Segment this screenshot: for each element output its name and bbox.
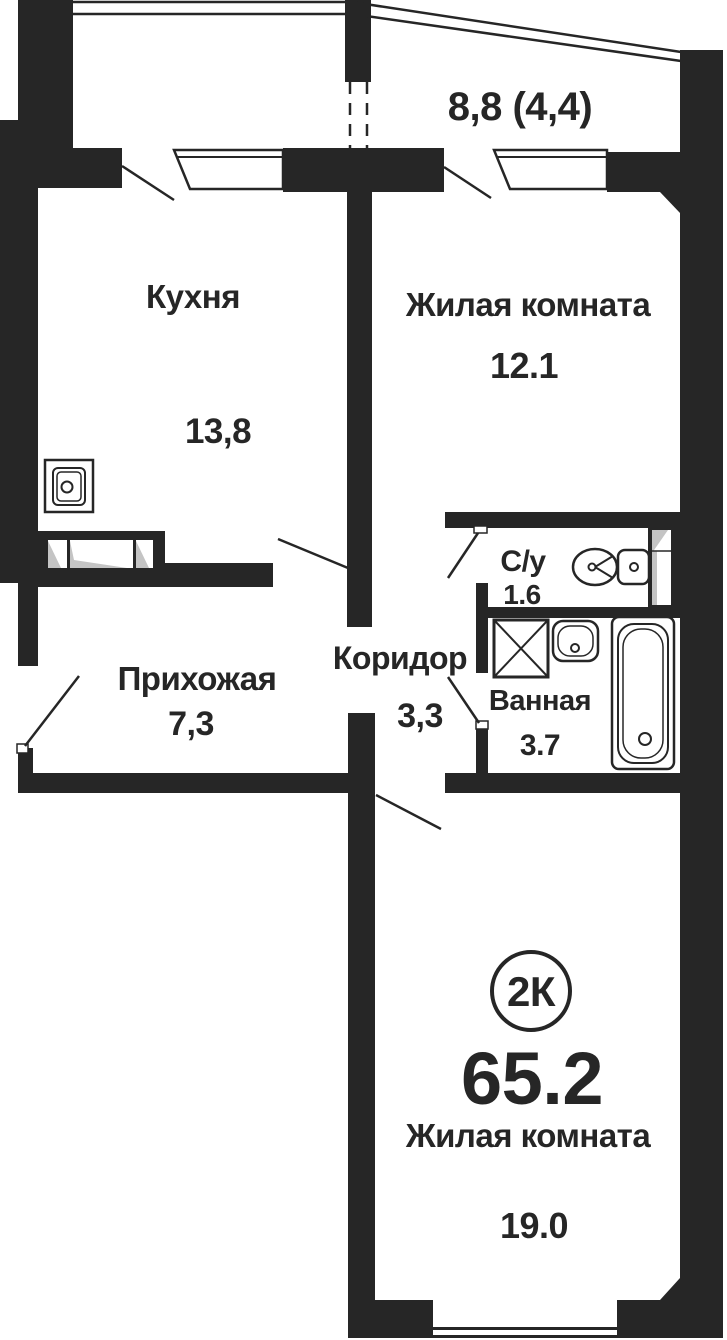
vent-duct-icon (48, 540, 153, 568)
kitchen-sink-icon (45, 460, 93, 512)
washing-machine-icon (494, 620, 548, 677)
corridor-area: 3,3 (397, 697, 443, 735)
shaft-icon (652, 530, 671, 605)
hallway-label: Прихожая (118, 660, 277, 697)
bathtub-icon (612, 617, 674, 769)
bathroom-area: 3.7 (520, 729, 560, 762)
living1-label: Жилая комната (405, 286, 652, 323)
kitchen-balcony-window (174, 150, 283, 189)
floor-plan-page: 8,8 (4,4) Кухня 13,8 Жилая комната 12.1 … (0, 0, 727, 1340)
hallway-area: 7,3 (168, 705, 214, 743)
wc-label: С/у (500, 545, 546, 578)
living2-area: 19.0 (500, 1205, 568, 1246)
total-area-label: 65.2 (461, 1037, 603, 1120)
kitchen-area: 13,8 (185, 412, 251, 451)
floor-plan: 8,8 (4,4) Кухня 13,8 Жилая комната 12.1 … (0, 0, 727, 1340)
balcony-area-label: 8,8 (4,4) (448, 85, 592, 129)
toilet-icon (573, 549, 649, 585)
living1-balcony-door-swing (444, 167, 491, 198)
living2-label: Жилая комната (405, 1117, 652, 1154)
bathroom-sink-icon (553, 621, 598, 661)
labels: 8,8 (4,4) Кухня 13,8 Жилая комната 12.1 … (118, 85, 652, 1246)
entrance-door (17, 676, 79, 753)
living1-balcony-window (494, 150, 607, 189)
kitchen-label: Кухня (146, 278, 240, 315)
kitchen-door-swing (278, 539, 348, 568)
kitchen-balcony-door-swing (122, 166, 174, 200)
type-badge-label: 2К (507, 968, 556, 1015)
wc-door (448, 526, 487, 578)
bathroom-door (448, 677, 488, 729)
corridor-label: Коридор (333, 640, 467, 676)
living2-window (433, 1300, 617, 1335)
living2-door-swing (376, 795, 441, 829)
type-badge: 2К (492, 952, 570, 1030)
bathroom-label: Ванная (489, 685, 591, 717)
wc-area: 1.6 (503, 579, 540, 610)
living1-area: 12.1 (490, 345, 559, 386)
